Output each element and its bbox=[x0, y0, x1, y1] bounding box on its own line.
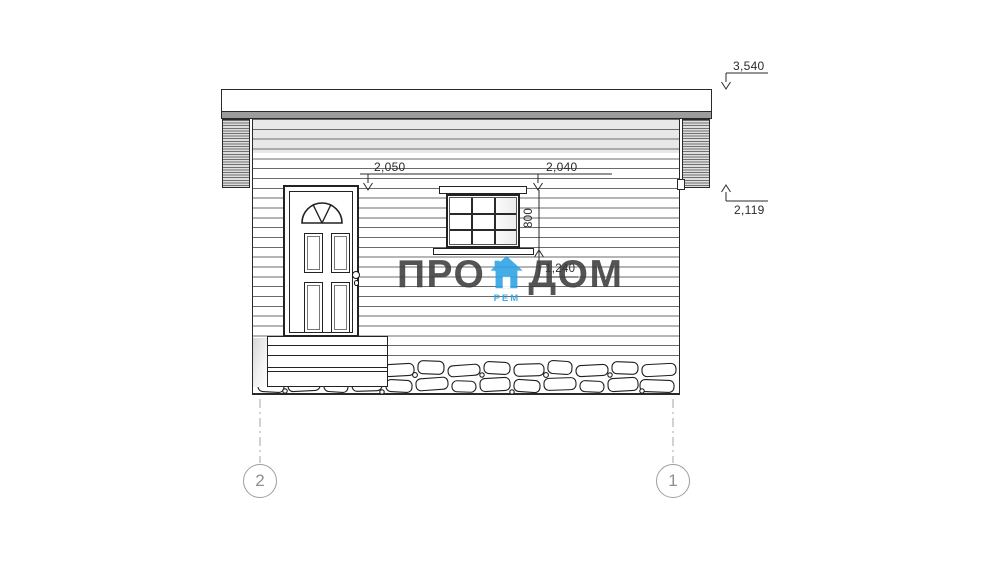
watermark-text-pro: ПРО bbox=[397, 260, 485, 290]
dim-window-top: 2,040 bbox=[546, 160, 578, 174]
door-fanlight bbox=[301, 200, 343, 224]
axis-bubble-1: 1 bbox=[656, 464, 690, 498]
door-panel bbox=[304, 233, 323, 273]
door-leaf bbox=[289, 191, 353, 333]
step-edge bbox=[268, 345, 387, 346]
door-panel bbox=[331, 282, 350, 333]
corner-board-notch bbox=[677, 179, 685, 190]
elevation-drawing: 2,050 2,040 800 1,240 3,540 2,119 2 1 ПР… bbox=[0, 0, 1000, 563]
level-eaves: 2,119 bbox=[734, 203, 765, 217]
window-muntin bbox=[494, 198, 496, 244]
watermark-text-dom: ДОМ bbox=[528, 260, 623, 290]
entrance-door bbox=[283, 185, 359, 337]
step-edge bbox=[268, 367, 387, 368]
step-edge bbox=[268, 371, 387, 372]
porch-side-shadow bbox=[253, 338, 267, 387]
door-panel bbox=[304, 282, 323, 333]
door-panel bbox=[331, 233, 350, 273]
watermark-logo: ПРО РЕМ ДОМ bbox=[397, 260, 623, 304]
window-header-board bbox=[439, 186, 527, 194]
dim-window-height: 800 bbox=[523, 203, 535, 233]
roof-overhang-left bbox=[222, 119, 250, 188]
window-muntin bbox=[471, 198, 473, 244]
window-muntin bbox=[450, 229, 516, 231]
axis-label-2: 2 bbox=[255, 471, 264, 491]
roof-fascia bbox=[221, 89, 712, 112]
door-knob-icon bbox=[352, 271, 360, 279]
porch-steps bbox=[267, 336, 388, 387]
roof-drip-edge bbox=[221, 111, 712, 119]
dim-door-top: 2,050 bbox=[374, 160, 406, 174]
house-icon bbox=[490, 255, 523, 293]
door-keyhole-icon bbox=[354, 280, 360, 286]
window-glass bbox=[449, 197, 517, 245]
axis-bubble-2: 2 bbox=[243, 464, 277, 498]
level-roof-top: 3,540 bbox=[733, 59, 765, 73]
axis-label-1: 1 bbox=[668, 471, 677, 491]
window-muntin bbox=[450, 213, 516, 215]
roof-overhang-right bbox=[682, 119, 710, 188]
window bbox=[446, 194, 520, 248]
step-edge bbox=[268, 355, 387, 356]
watermark-text-rem: РЕМ bbox=[494, 293, 521, 304]
